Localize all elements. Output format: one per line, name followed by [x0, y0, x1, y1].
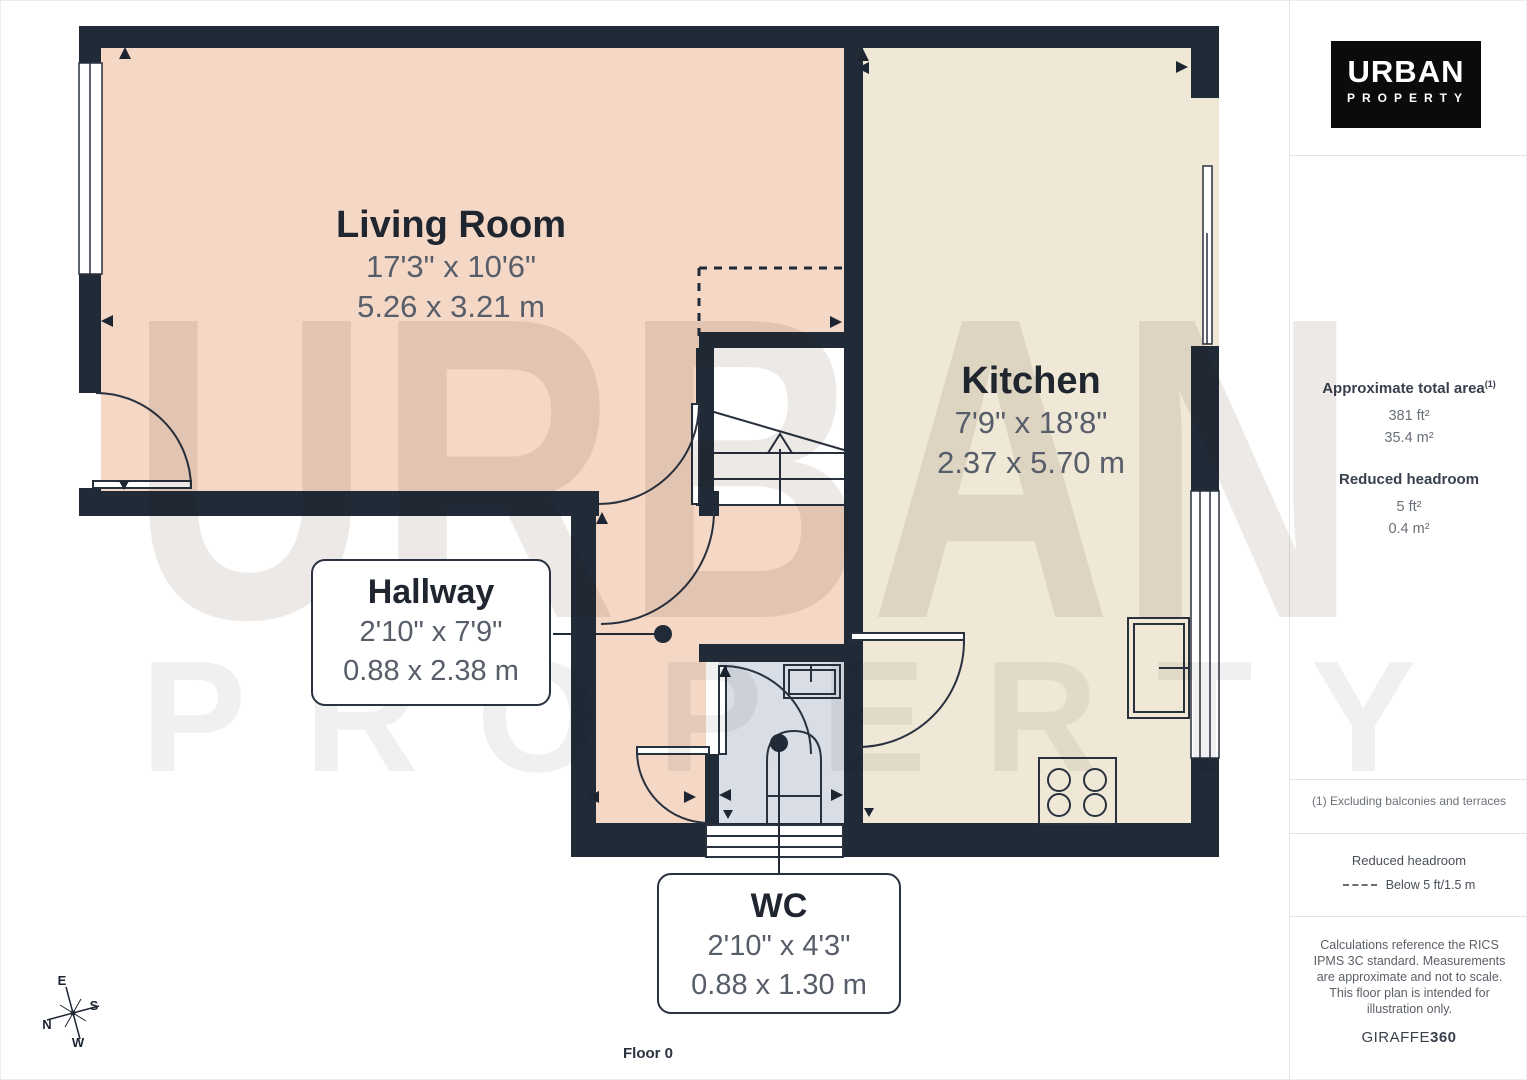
room-dim-ft: 17'3" x 10'6": [251, 247, 651, 287]
room-dim-m: 0.88 x 2.38 m: [313, 652, 549, 691]
room-name: Kitchen: [881, 359, 1181, 403]
area-summary: Approximate total area(1) 381 ft² 35.4 m…: [1290, 379, 1527, 540]
room-dim-ft: 2'10" x 7'9": [313, 613, 549, 652]
total-area-ft: 381 ft²: [1290, 405, 1527, 427]
kitchen-label: Kitchen 7'9" x 18'8" 2.37 x 5.70 m: [881, 359, 1181, 483]
compass-w-label: W: [72, 1035, 85, 1050]
urban-property-logo: URBAN PROPERTY: [1331, 41, 1481, 128]
total-area-m: 35.4 m²: [1290, 427, 1527, 449]
room-name: WC: [659, 885, 899, 927]
hallway-floor-upper: [596, 491, 844, 644]
legend-item-label: Below 5 ft/1.5 m: [1386, 878, 1476, 892]
brand-360: 360: [1430, 1029, 1457, 1046]
logo-line1: URBAN: [1331, 55, 1481, 89]
sidebar-divider: [1290, 155, 1527, 156]
room-dim-m: 0.88 x 1.30 m: [659, 966, 899, 1005]
room-dim-m: 2.37 x 5.70 m: [881, 443, 1181, 483]
sidebar-divider: [1290, 916, 1527, 917]
total-area-title-text: Approximate total area: [1322, 380, 1485, 397]
room-name: Living Room: [251, 203, 651, 247]
sidebar-divider: [1290, 833, 1527, 834]
room-dim-ft: 2'10" x 4'3": [659, 927, 899, 966]
room-dim-ft: 7'9" x 18'8": [881, 403, 1181, 443]
info-sidebar: URBAN PROPERTY Approximate total area(1)…: [1289, 1, 1527, 1080]
brand-name: GIRAFFE: [1361, 1029, 1430, 1046]
reduced-headroom-legend: Reduced headroom Below 5 ft/1.5 m: [1290, 853, 1527, 892]
window-living-room-left: [79, 63, 102, 274]
compass-icon: E S N W: [42, 973, 99, 1050]
footnote-excluding-balconies: (1) Excluding balconies and terraces: [1290, 794, 1527, 808]
room-dim-m: 5.26 x 3.21 m: [251, 287, 651, 327]
window-kitchen-right: [1191, 491, 1219, 758]
window-kitchen-bay: [1203, 166, 1212, 344]
compass-n-label: N: [42, 1017, 51, 1032]
reduced-headroom-m: 0.4 m²: [1290, 518, 1527, 540]
floor-label: Floor 0: [548, 1045, 748, 1062]
disclaimer-text: Calculations reference the RICS IPMS 3C …: [1310, 937, 1509, 1017]
wc-leader-dot: [770, 734, 788, 752]
sidebar-divider: [1290, 779, 1527, 780]
hallway-leader-dot: [654, 625, 672, 643]
legend-row: Below 5 ft/1.5 m: [1290, 878, 1527, 892]
dashed-line-icon: [1343, 884, 1377, 886]
reduced-headroom-ft: 5 ft²: [1290, 496, 1527, 518]
wc-callout: WC 2'10" x 4'3" 0.88 x 1.30 m: [657, 873, 901, 1014]
total-area-footnote-marker: (1): [1485, 379, 1496, 389]
floor-plan-drawing: E S N W: [1, 1, 1289, 1080]
floorplan-page: E S N W URBAN PROPERTY Living Room 17'3"…: [0, 0, 1527, 1080]
giraffe360-brand: GIRAFFE360: [1290, 1029, 1527, 1046]
floor-plan: E S N W URBAN PROPERTY Living Room 17'3"…: [1, 1, 1289, 1080]
stove-icon: [1039, 758, 1116, 824]
living-room-label: Living Room 17'3" x 10'6" 5.26 x 3.21 m: [251, 203, 651, 327]
entrance-steps: [706, 825, 843, 857]
logo-line2: PROPERTY: [1335, 89, 1481, 107]
compass-s-label: S: [90, 998, 99, 1013]
legend-title: Reduced headroom: [1290, 853, 1527, 868]
room-name: Hallway: [313, 571, 549, 613]
compass-e-label: E: [58, 973, 67, 988]
reduced-headroom-title: Reduced headroom: [1290, 471, 1527, 488]
total-area-title: Approximate total area(1): [1290, 379, 1527, 397]
hallway-callout: Hallway 2'10" x 7'9" 0.88 x 2.38 m: [311, 559, 551, 706]
